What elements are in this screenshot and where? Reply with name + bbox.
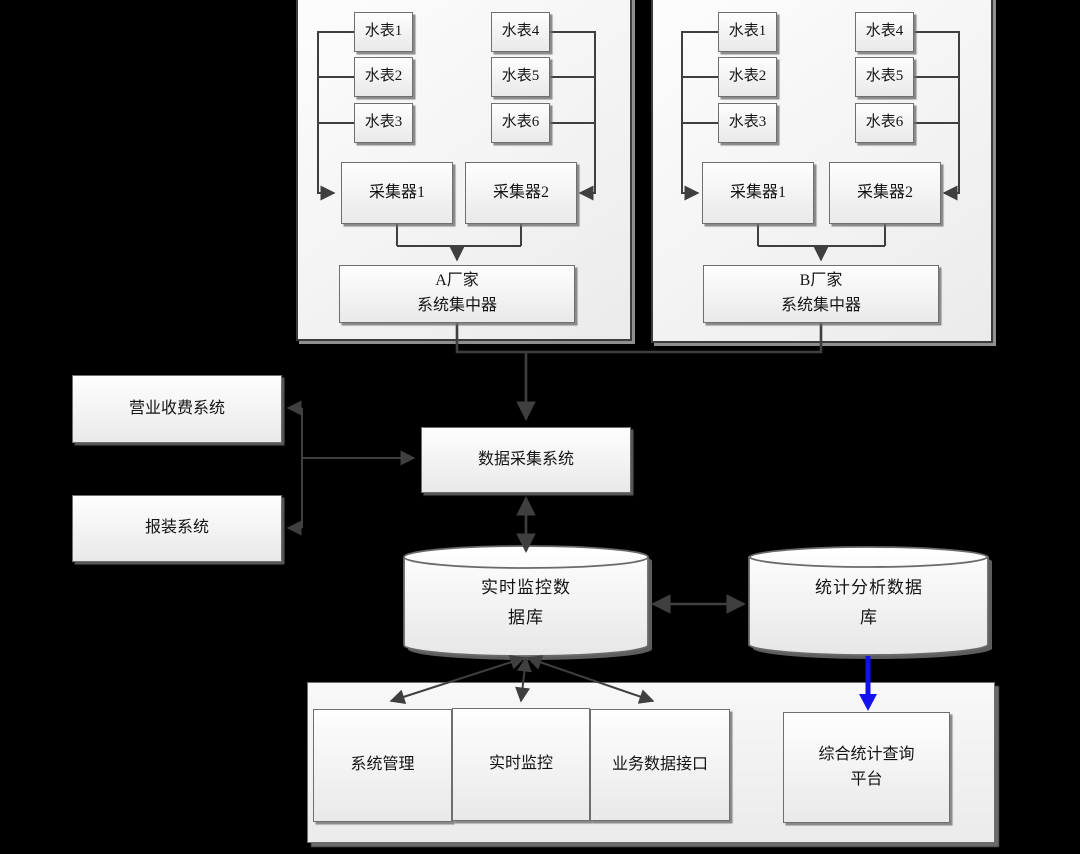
vendor-b-concentrator-box: B厂家 系统集中器 (703, 265, 939, 323)
daq-system-box: 数据采集系统 (421, 427, 631, 493)
vendor-a-collector-1-label: 采集器1 (369, 181, 425, 206)
realtime-db-label: 实时监控数 据库 (410, 572, 642, 634)
vendor-a-collector-2-box: 采集器2 (465, 162, 577, 224)
vendor-a-meter-5-label: 水表5 (502, 65, 540, 88)
vendor-a-meter-1-label: 水表1 (365, 20, 403, 43)
vendor-a-collector-merge (397, 224, 521, 260)
left-systems-connector (288, 408, 414, 528)
vendor-a-meter-5-box: 水表5 (491, 57, 550, 97)
vendor-a-meter-6-box: 水表6 (491, 103, 550, 143)
statistics-db-line2: 库 (860, 603, 878, 633)
billing-system-label: 营业收费系统 (129, 397, 225, 422)
vendor-a-meter-6-label: 水表6 (502, 111, 540, 134)
daq-system-label: 数据采集系统 (478, 448, 574, 473)
vendor-b-collector-1-box: 采集器1 (702, 162, 814, 224)
vendor-a-concentrator-line2: 系统集中器 (417, 294, 497, 319)
realtime-db-to-modules-arrows (391, 658, 653, 701)
vendor-b-meter-2-label: 水表2 (729, 65, 767, 88)
vendor-b-concentrator-line2: 系统集中器 (781, 294, 861, 319)
business-data-interface-label: 业务数据接口 (612, 753, 708, 778)
vendor-a-meter-3-box: 水表3 (354, 103, 413, 143)
vendor-b-meter-3-box: 水表3 (718, 103, 777, 143)
statistics-to-platform-arrow (859, 656, 877, 711)
vendor-b-concentrator-line1: B厂家 (800, 269, 843, 294)
vendor-a-meter-1-box: 水表1 (354, 12, 413, 52)
vendor-b-meter-1-box: 水表1 (718, 12, 777, 52)
realtime-monitoring-label: 实时监控 (489, 752, 553, 777)
system-management-label: 系统管理 (350, 753, 414, 778)
installation-system-label: 报装系统 (145, 516, 209, 541)
vendor-b-meter-4-label: 水表4 (866, 20, 904, 43)
vendor-b-collector-2-label: 采集器2 (857, 181, 913, 206)
vendor-a-meter-4-label: 水表4 (502, 20, 540, 43)
vendor-a-concentrator-box: A厂家 系统集中器 (339, 265, 575, 323)
realtime-db-line1: 实时监控数 (481, 573, 571, 603)
vendor-b-meter-4-box: 水表4 (855, 12, 914, 52)
system-management-box: 系统管理 (313, 709, 452, 822)
query-platform-box: 综合统计查询 平台 (783, 712, 950, 823)
vendor-a-meter-4-box: 水表4 (491, 12, 550, 52)
query-platform-line2: 平台 (850, 768, 882, 793)
vendor-a-concentrator-line1: A厂家 (435, 269, 479, 294)
vendor-b-meter-6-box: 水表6 (855, 103, 914, 143)
vendor-a-collector-2-label: 采集器2 (493, 181, 549, 206)
business-data-interface-box: 业务数据接口 (590, 709, 730, 821)
vendor-b-collector-2-box: 采集器2 (829, 162, 941, 224)
vendor-b-meter-3-label: 水表3 (729, 111, 767, 134)
vendor-b-meter-2-box: 水表2 (718, 57, 777, 97)
statistics-db-label: 统计分析数据 库 (753, 572, 985, 634)
installation-system-box: 报装系统 (72, 495, 282, 562)
vendor-a-meter-3-label: 水表3 (365, 111, 403, 134)
vendor-b-meter-1-label: 水表1 (729, 20, 767, 43)
vendor-a-meter-2-label: 水表2 (365, 65, 403, 88)
concentrators-to-daq-connector (457, 323, 821, 419)
realtime-db-line2: 据库 (508, 603, 544, 633)
vendor-b-meter-6-label: 水表6 (866, 111, 904, 134)
vendor-a-meter-2-box: 水表2 (354, 57, 413, 97)
diagram-canvas: 水表1 水表2 水表3 水表4 水表5 水表6 采集器1 采集器2 A厂家 系统… (0, 0, 1080, 854)
statistics-db-line1: 统计分析数据 (815, 573, 923, 603)
vendor-b-meter-5-box: 水表5 (855, 57, 914, 97)
billing-system-box: 营业收费系统 (72, 375, 282, 443)
vendor-b-meter-5-label: 水表5 (866, 65, 904, 88)
vendor-b-collector-1-label: 采集器1 (730, 181, 786, 206)
vendor-a-collector-1-box: 采集器1 (341, 162, 453, 224)
query-platform-line1: 综合统计查询 (818, 743, 914, 768)
vendor-b-collector-merge (758, 224, 885, 260)
realtime-monitoring-box: 实时监控 (452, 708, 590, 821)
